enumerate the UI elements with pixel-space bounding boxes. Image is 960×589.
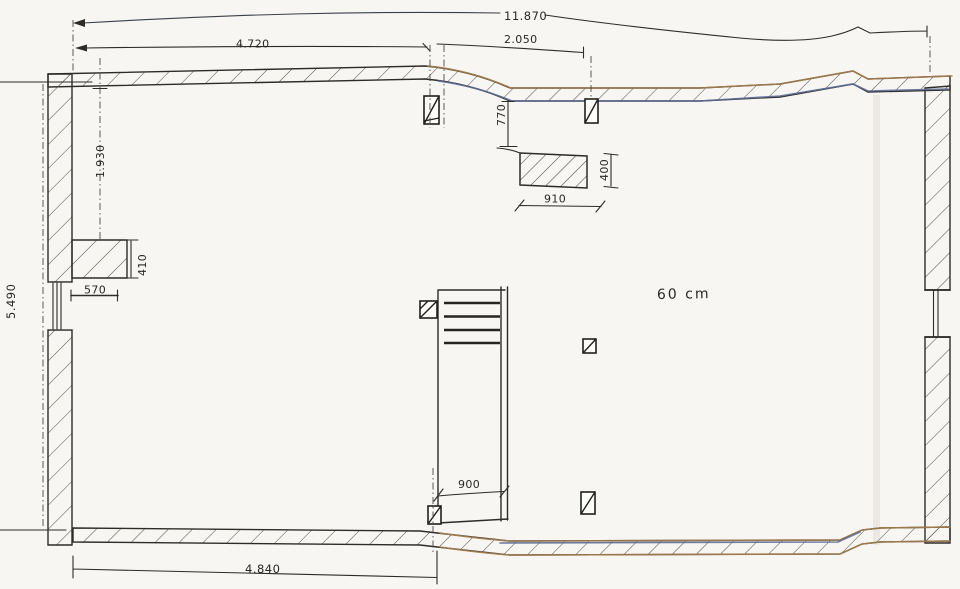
column-marker-stair-top [420,301,437,318]
left-window [48,282,72,330]
dim-beam-height: 400 [598,154,618,189]
column-marker-center [583,339,596,353]
left-wall-lower [48,330,72,545]
scan-smudge [873,95,880,545]
dim-label-span-top-left: 4.720 [236,38,270,51]
dim-pier-offset: 570 [71,284,118,302]
dim-label-beam-height: 400 [598,159,611,181]
left-wall-upper [48,74,72,282]
dim-label-pier-depth: 410 [136,254,149,276]
dim-beam-offset: 770 [495,102,517,147]
dim-stair-width: 900 [434,478,509,501]
column-marker-stair-bottom [428,506,441,524]
column-marker-top-left [424,96,439,124]
wall-pier [72,240,127,278]
dim-label-span-bottom: 4.840 [245,562,280,576]
pencil-note-60cm: 60 cm [657,286,711,303]
floor-plan-svg: 11.870 4.720 2.050 5.490 1.930 410 570 7… [0,0,960,589]
dim-label-beam-offset: 770 [495,104,508,126]
dim-label-span-top-mid: 2.050 [504,33,538,46]
arrowhead-left [73,19,85,27]
dim-span-bottom: 4.840 [73,551,437,584]
right-wall-upper [925,86,950,290]
column-marker-bottom-mid [581,492,595,514]
right-window [925,290,950,337]
dim-label-total-top: 11.870 [504,9,547,23]
dim-label-height-left: 5.490 [4,284,18,319]
dim-label-beam-width: 910 [544,193,566,206]
right-wall-lower [925,337,950,543]
arrowhead-left [75,45,87,52]
stair-treads [444,303,500,343]
dim-label-upper-left-height: 1.930 [94,145,107,179]
extension-lines [43,20,930,553]
walls [48,66,950,555]
dim-total-top: 11.870 [73,9,927,40]
dim-height-left: 5.490 [0,82,92,530]
column-marker-top-mid [585,99,598,123]
dim-span-top-mid: 2.050 [437,33,584,58]
dim-upper-left-height: 1.930 [93,89,107,241]
dim-span-top-left: 4.720 [75,38,430,52]
floor-plan-drawing: 11.870 4.720 2.050 5.490 1.930 410 570 7… [0,0,960,589]
dim-label-stair-width: 900 [458,478,480,491]
dim-beam-width: 910 [515,193,605,213]
beam-block [497,148,587,188]
dim-label-pier-offset: 570 [84,284,106,297]
